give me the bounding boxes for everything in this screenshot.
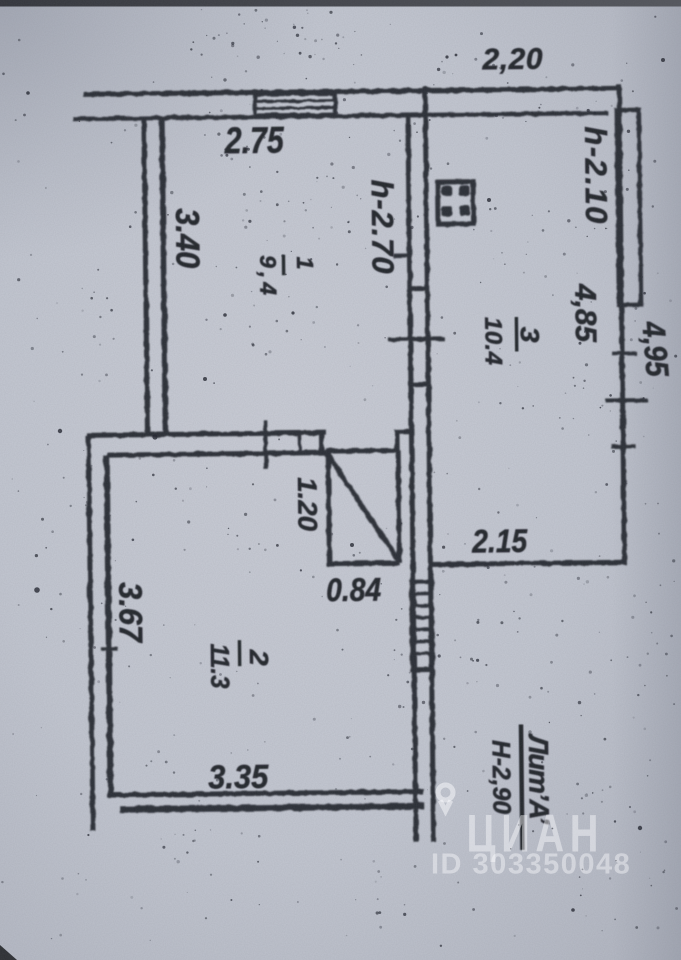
svg-text:ID 303350048: ID 303350048	[431, 849, 631, 881]
